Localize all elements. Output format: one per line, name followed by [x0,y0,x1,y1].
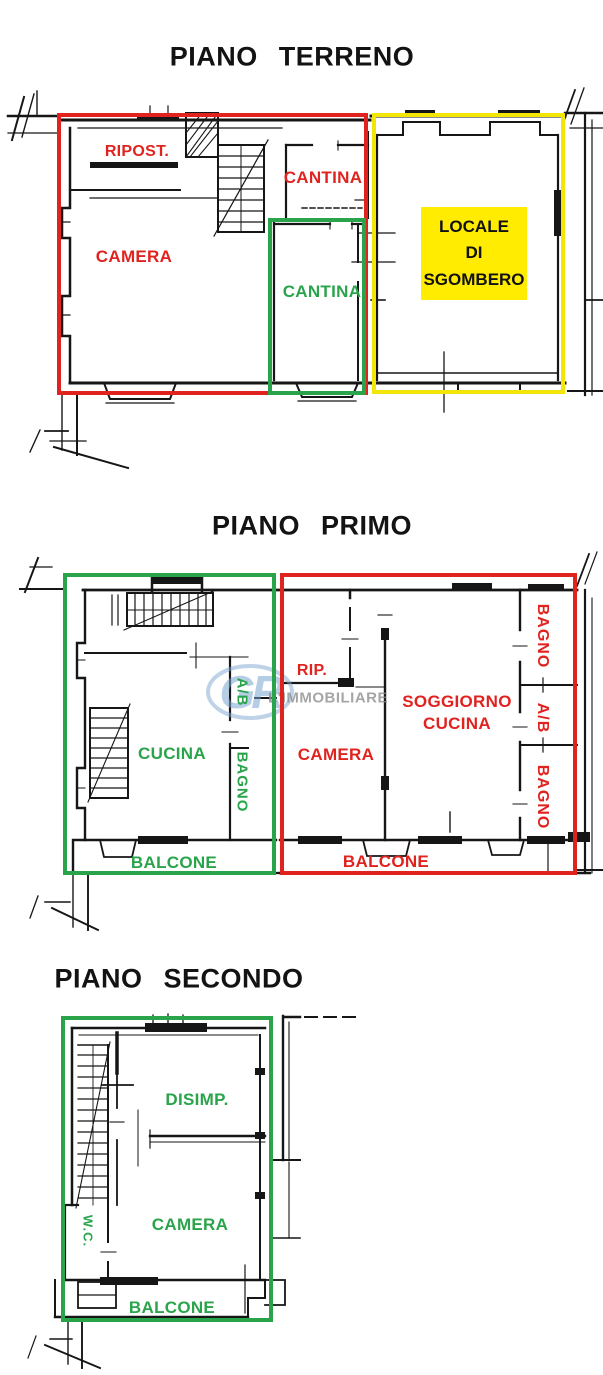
room-label-cantina-green: CANTINA [283,282,362,302]
soggiorno-line-1: SOGGIORNO [402,691,511,713]
floor-piano-secondo: PIANO SECONDO DISIMP. CAMERA W.C. BALCON… [0,940,603,1375]
floor-title-secondo: PIANO SECONDO [54,964,303,995]
locale-line-3: SGOMBERO [423,267,524,293]
floor-piano-primo: GR L'IMMOBILIARE PIANO PRIMO RIP. CAMERA… [0,480,603,940]
floor-title-primo: PIANO PRIMO [212,511,412,542]
room-label-ab-red: A/B [533,703,551,734]
floor-piano-terreno: PIANO TERRENO RIPOST. CAMERA CANTINA CAN… [0,0,603,480]
room-label-camera-secondo: CAMERA [152,1215,228,1235]
room-label-bagno-top-red: BAGNO [533,604,551,669]
unit-outline-green-terreno [268,218,366,395]
soggiorno-line-2: CUCINA [402,713,511,735]
room-label-bagno-bottom-red: BAGNO [533,765,551,830]
room-label-locale-di-sgombero: LOCALE DI SGOMBERO [421,207,527,300]
unit-outline-green-secondo [61,1016,273,1322]
room-label-camera-terreno: CAMERA [96,247,172,267]
room-label-rip: RIP. [297,662,327,680]
room-label-ripost: RIPOST. [105,143,169,161]
room-label-soggiorno-cucina: SOGGIORNO CUCINA [402,691,511,735]
floor-title-terreno: PIANO TERRENO [170,42,415,73]
room-label-wc: W.C. [81,1215,96,1247]
room-label-camera-primo: CAMERA [298,745,374,765]
room-label-cantina-red: CANTINA [284,168,363,188]
room-label-ab-green: A/B [234,678,251,707]
room-label-balcone-green: BALCONE [131,853,217,873]
room-label-cucina: CUCINA [138,744,206,764]
locale-line-2: DI [466,240,483,266]
unit-outline-green-primo [63,573,276,875]
room-label-bagno-green: BAGNO [234,752,251,813]
room-label-balcone-red: BALCONE [343,852,429,872]
locale-line-1: LOCALE [439,214,509,240]
room-label-balcone-secondo: BALCONE [129,1298,215,1318]
floorplan-page: PIANO TERRENO RIPOST. CAMERA CANTINA CAN… [0,0,603,1375]
room-label-disimp: DISIMP. [165,1090,228,1110]
